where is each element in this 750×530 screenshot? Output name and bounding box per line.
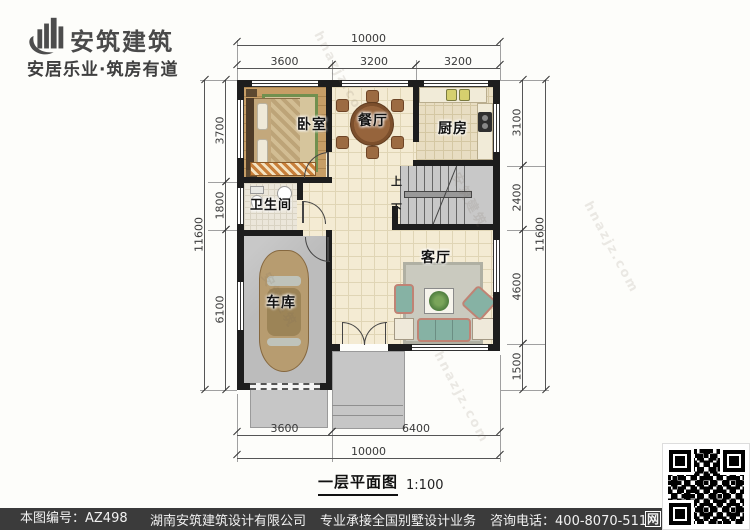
dim-label: 4600 (512, 254, 523, 320)
dim-label: 1500 (512, 334, 523, 400)
window (237, 100, 244, 158)
qr-finder (723, 450, 745, 472)
watermark-text: hnazjz.com (580, 199, 641, 296)
extension-line (500, 80, 549, 81)
side-table (472, 318, 494, 340)
dim-label: 6100 (215, 277, 226, 343)
window (493, 240, 500, 292)
dim-right-seg: 4600 (522, 230, 523, 344)
dim-right-overall: 11600 (545, 80, 546, 390)
plan-scale: 1:100 (406, 478, 443, 496)
interior-wall-bedroom (326, 80, 332, 152)
dim-label: 3600 (271, 56, 299, 67)
extension-line (200, 390, 237, 391)
bed-blanket (271, 99, 300, 169)
dim-label: 11600 (194, 202, 205, 268)
dim-right-seg: 2400 (522, 166, 523, 230)
extension-line (237, 40, 238, 80)
porch-step (332, 405, 403, 406)
side-table (394, 318, 414, 340)
window (237, 282, 244, 330)
window (424, 80, 488, 87)
nightstand (246, 89, 257, 97)
phone-text: 咨询电话：400-8070-511 (490, 510, 647, 529)
exterior-wall-bottom (488, 344, 500, 351)
plan-title: 一层平面图 (318, 471, 398, 496)
brand-logo-icon (24, 13, 70, 59)
garage-door (250, 383, 320, 390)
plant (429, 291, 449, 311)
interior-wall-garage-top (237, 230, 303, 236)
dim-label: 10000 (351, 33, 386, 44)
window (412, 344, 488, 351)
stairs-up-label: 上 (391, 176, 402, 187)
dim-left-seg: 3700 (225, 80, 226, 182)
interior-wall-kitchen-bottom (413, 160, 493, 166)
brand-slogan: 安居乐业·筑房有道 (27, 55, 178, 80)
room-label-bathroom: 卫生间 (250, 199, 292, 212)
dim-right-seg: 1500 (522, 344, 523, 390)
dim-label: 10000 (351, 446, 386, 457)
dim-label: 11600 (535, 202, 546, 268)
extension-line (200, 80, 237, 81)
dim-label: 6400 (402, 423, 430, 434)
qr-code (662, 443, 750, 530)
kitchen-sink (459, 89, 470, 101)
room-label-living: 客厅 (421, 251, 451, 265)
window (252, 80, 318, 87)
entry-porch (332, 351, 405, 429)
dim-top-overall: 10000 (237, 45, 500, 46)
bed-headboard (246, 98, 254, 170)
dim-label: 3600 (271, 423, 299, 434)
dining-chair (391, 99, 404, 112)
room-label-kitchen: 厨房 (438, 122, 468, 136)
dim-top-seg: 3600 (237, 68, 332, 69)
exterior-wall-bottom (332, 344, 340, 351)
toilet-tank (250, 186, 264, 194)
sofa (417, 318, 471, 342)
service-text: 专业承接全国别墅设计业务 (320, 510, 476, 529)
dim-top-seg: 3200 (416, 68, 500, 69)
stairs-down-label: 下 (391, 203, 402, 214)
dining-chair (336, 136, 349, 149)
exterior-wall-bottom (388, 344, 412, 351)
floorplan-page: 安筑建筑 安居乐业·筑房有道 (0, 0, 750, 530)
stove-burner (482, 115, 488, 121)
footer-info: 湖南安筑建筑设计有限公司 专业承接全国别墅设计业务 咨询电话：400-8070-… (150, 508, 647, 530)
stove-burner (482, 123, 488, 129)
door-leaf (385, 322, 386, 344)
dim-left-overall: 11600 (204, 80, 205, 390)
window (493, 104, 500, 152)
brand-name: 安筑建筑 (70, 22, 174, 57)
pillow (257, 103, 268, 130)
dining-chair (366, 146, 379, 159)
extension-line (500, 355, 501, 462)
door-leaf (302, 201, 304, 223)
dim-left-seg: 1800 (225, 182, 226, 230)
door-leaf (327, 152, 329, 177)
extension-line (500, 390, 549, 391)
company-name: 湖南安筑建筑设计有限公司 (150, 510, 306, 529)
dim-label: 3200 (444, 56, 472, 67)
kitchen-sink (446, 89, 457, 101)
interior-wall-kitchen (413, 87, 419, 142)
dim-label: 2400 (512, 165, 523, 231)
net-label: 网 (645, 511, 661, 527)
drawing-number: 本图编号：AZ498 (20, 508, 128, 530)
dim-bottom-seg: 3600 (237, 435, 332, 436)
dim-label: 1800 (215, 173, 226, 239)
door-leaf (327, 237, 329, 261)
plan-caption: 一层平面图 1:100 (318, 471, 443, 496)
dim-right-seg: 3100 (522, 80, 523, 166)
room-label-bedroom: 卧室 (297, 118, 327, 132)
car-rear-window (267, 338, 301, 346)
dim-label: 3200 (360, 56, 388, 67)
footer-bar: 本图编号：AZ498 湖南安筑建筑设计有限公司 专业承接全国别墅设计业务 咨询电… (0, 508, 750, 530)
qr-finder (669, 450, 691, 472)
window (237, 188, 244, 224)
watermark-text: hnazjz.com (430, 349, 491, 446)
dim-label: 3100 (512, 90, 523, 156)
armchair (394, 284, 414, 314)
dim-bottom-overall: 10000 (237, 458, 500, 459)
qr-finder (669, 503, 691, 525)
interior-wall-bath (297, 183, 303, 200)
extension-line (500, 40, 501, 80)
dining-chair (391, 136, 404, 149)
dim-label: 3700 (215, 98, 226, 164)
porch-step (332, 415, 403, 416)
door-leaf (342, 322, 343, 344)
dim-left-seg: 6100 (225, 230, 226, 390)
